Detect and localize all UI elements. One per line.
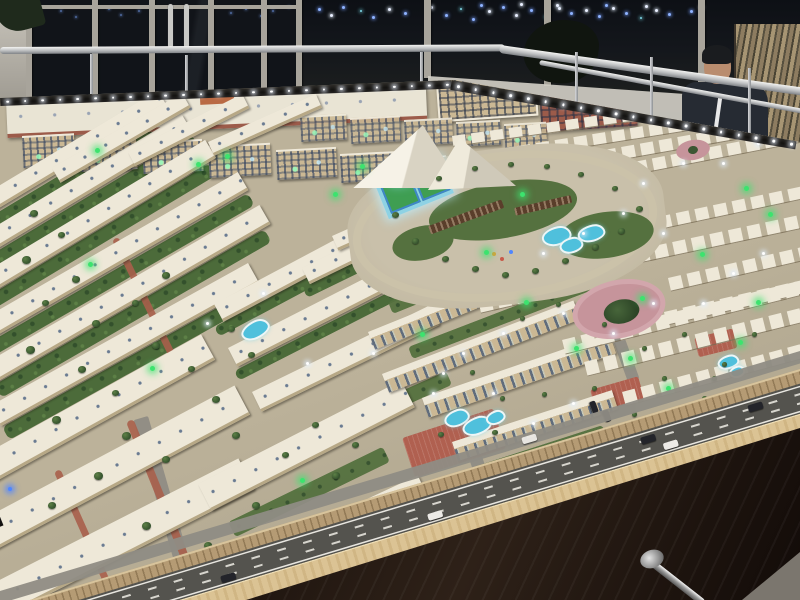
fascia-light [772, 139, 775, 142]
fascia-light [720, 130, 723, 133]
white-led [582, 232, 585, 235]
white-led [622, 212, 625, 215]
fascia-light [76, 97, 79, 100]
white-led [532, 422, 535, 425]
fascia-light [340, 87, 343, 90]
white-led [652, 302, 655, 305]
fascia-light [112, 96, 115, 99]
fascia-light [580, 106, 583, 109]
fascia-light [147, 95, 150, 98]
fascia-light [474, 88, 477, 91]
white-led [762, 252, 765, 255]
fascia-light [597, 109, 600, 112]
railing-post [185, 55, 188, 95]
photo-architectural-model [0, 0, 800, 600]
fascia-light [544, 100, 547, 103]
fascia-light [790, 142, 793, 145]
white-led [732, 272, 735, 275]
green-led [768, 212, 773, 217]
fascia-light [632, 115, 635, 118]
fascia-light [164, 94, 167, 97]
fascia-light [217, 92, 220, 95]
road-car [427, 510, 443, 521]
fascia-light [252, 91, 255, 94]
railing-post [748, 68, 751, 140]
green-led [700, 252, 705, 257]
fascia-light [358, 87, 361, 90]
fascia-light [615, 112, 618, 115]
fascia-light [737, 133, 740, 136]
fascia-light [235, 91, 238, 94]
white-led [206, 322, 209, 325]
inner-street-car [521, 433, 537, 444]
fascia-light [129, 95, 132, 98]
green-led [300, 478, 305, 483]
fascia-light [428, 84, 431, 87]
fascia-light [24, 99, 27, 102]
green-led [738, 340, 743, 345]
railing-post [90, 54, 93, 94]
fascia-light [685, 124, 688, 127]
white-led [442, 372, 445, 375]
green-led [150, 366, 155, 371]
fascia-light [562, 103, 565, 106]
road-car [747, 401, 763, 412]
white-led [502, 332, 505, 335]
fascia-light [41, 99, 44, 102]
blue-led [8, 487, 12, 491]
white-led [262, 292, 265, 295]
white-led [702, 302, 705, 305]
fascia-light [457, 85, 460, 88]
green-led [420, 332, 425, 337]
white-led [372, 352, 375, 355]
white-led [462, 352, 465, 355]
white-led [612, 332, 615, 335]
green-led [628, 356, 633, 361]
white-led [306, 362, 309, 365]
fascia-light [650, 118, 653, 121]
fascia-light [446, 83, 449, 86]
road-car [663, 439, 679, 450]
fascia-light [323, 88, 326, 91]
white-led [542, 252, 545, 255]
white-led [432, 392, 435, 395]
fascia-light [702, 127, 705, 130]
green-led [640, 296, 645, 301]
fascia-light [182, 93, 185, 96]
fascia-light [667, 121, 670, 124]
green-led [574, 346, 579, 351]
green-led [524, 300, 529, 305]
fascia-light [527, 97, 530, 100]
fascia-light [755, 136, 758, 139]
green-led [88, 262, 93, 267]
fascia-light [393, 85, 396, 88]
fascia-light [492, 91, 495, 94]
fascia-light [59, 98, 62, 101]
white-led [562, 312, 565, 315]
road-car [640, 434, 656, 445]
fascia-light [509, 94, 512, 97]
fascia-light [94, 97, 97, 100]
fascia-light [375, 86, 378, 89]
road-car [220, 572, 236, 583]
fascia-light [288, 89, 291, 92]
fascia-light [270, 90, 273, 93]
white-led [492, 392, 495, 395]
fascia-light [411, 85, 414, 88]
fascia-light [305, 89, 308, 92]
green-led [484, 250, 489, 255]
white-led [572, 402, 575, 405]
fascia-light [200, 93, 203, 96]
white-led [662, 232, 665, 235]
fascia-light [6, 100, 9, 103]
green-led [756, 300, 761, 305]
railing-post [650, 57, 653, 125]
